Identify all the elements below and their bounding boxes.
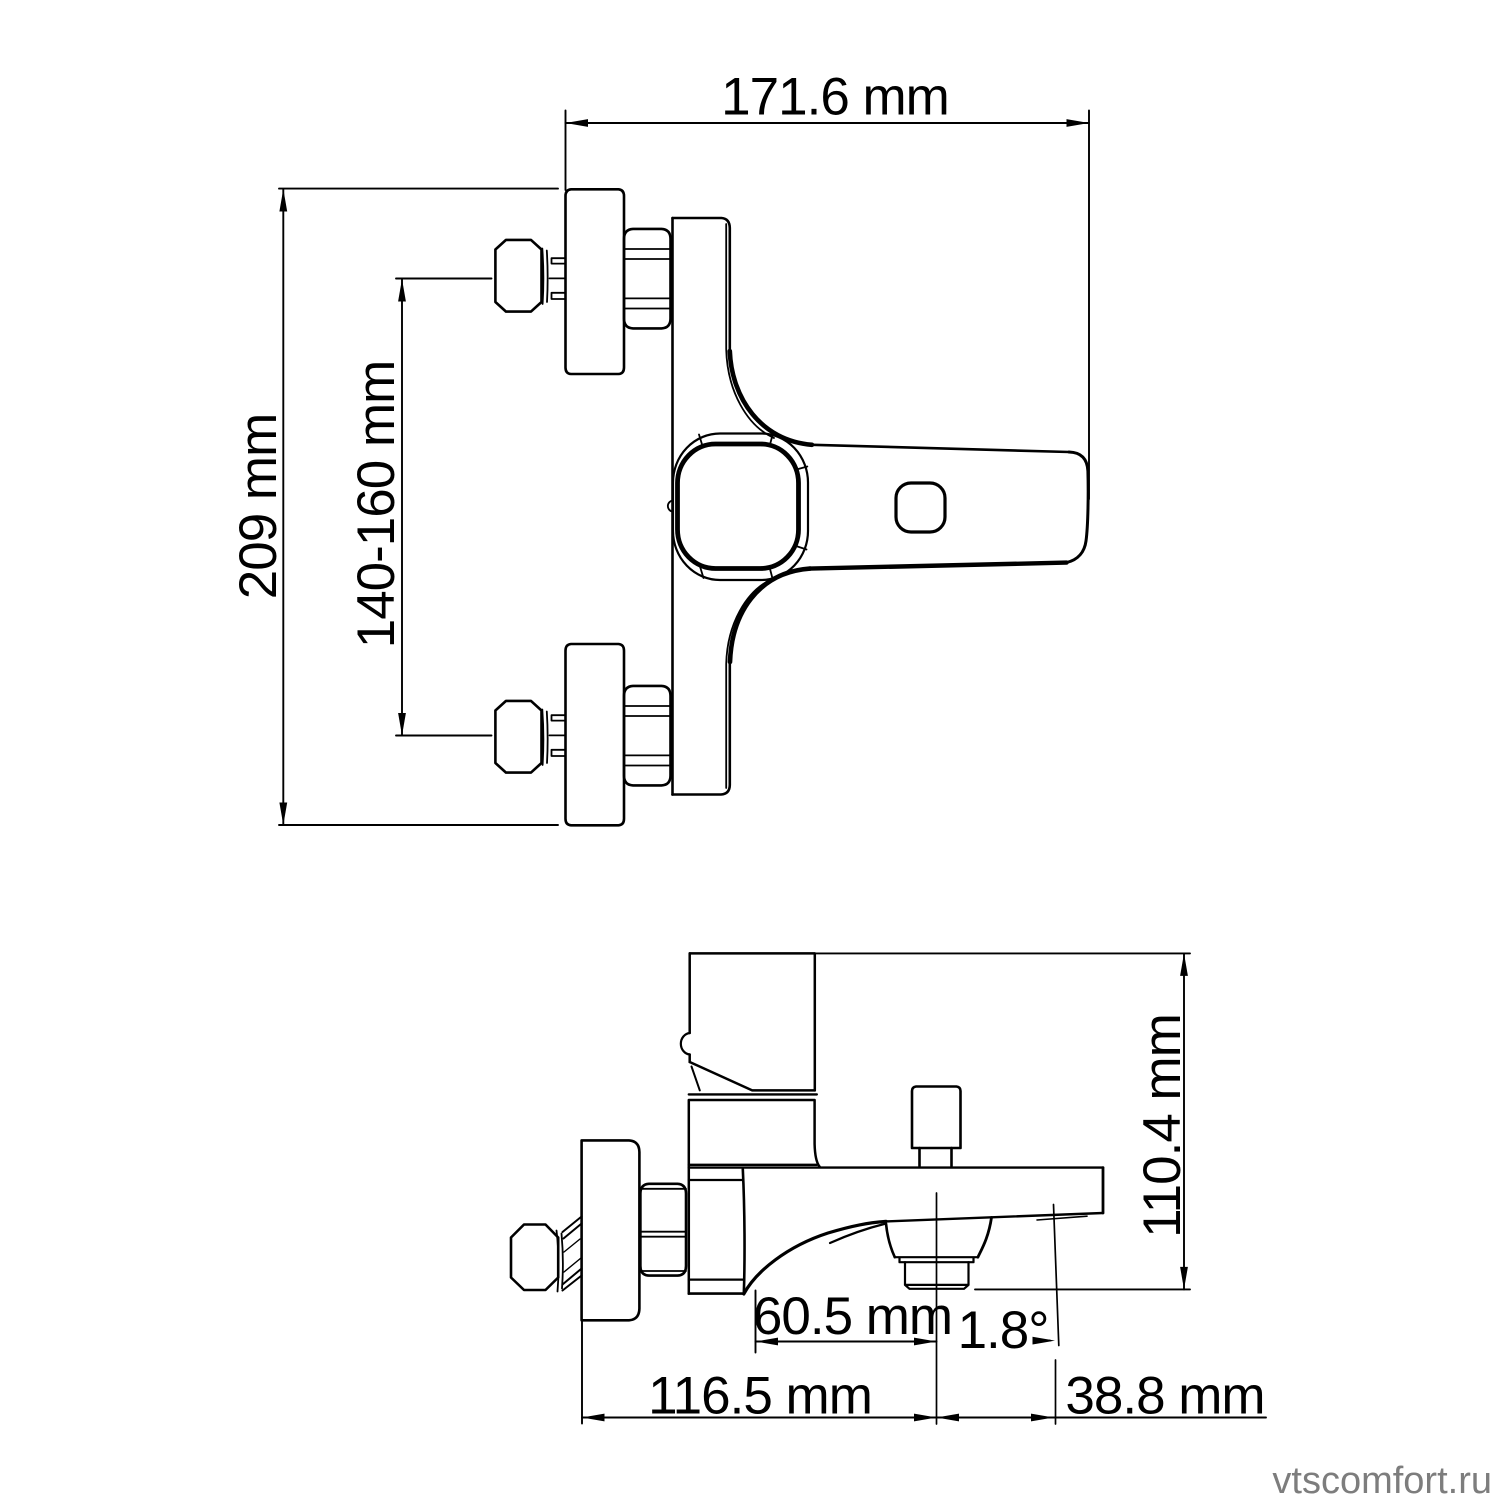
svg-text:209 mm: 209 mm [229,414,288,599]
svg-text:vtscomfort.ru: vtscomfort.ru [1272,1460,1492,1502]
svg-text:110.4 mm: 110.4 mm [1133,1014,1192,1238]
svg-text:38.8 mm: 38.8 mm [1065,1367,1264,1426]
svg-text:1.8°: 1.8° [958,1301,1049,1360]
svg-text:171.6 mm: 171.6 mm [721,68,949,127]
svg-text:116.5 mm: 116.5 mm [648,1367,872,1426]
svg-text:60.5 mm: 60.5 mm [753,1287,952,1346]
svg-text:140-160 mm: 140-160 mm [347,361,406,649]
